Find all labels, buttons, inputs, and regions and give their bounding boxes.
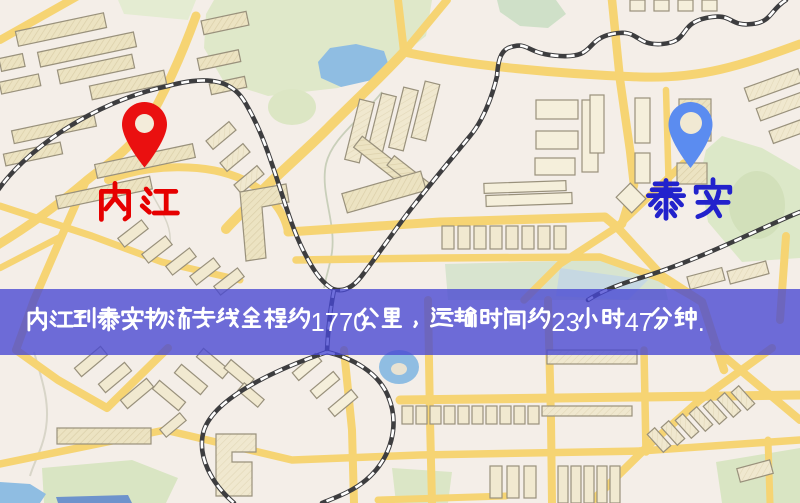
- svg-text:1770: 1770: [311, 309, 368, 337]
- svg-text:.: .: [698, 309, 705, 337]
- svg-text:47: 47: [625, 309, 653, 337]
- svg-text:23: 23: [551, 309, 579, 337]
